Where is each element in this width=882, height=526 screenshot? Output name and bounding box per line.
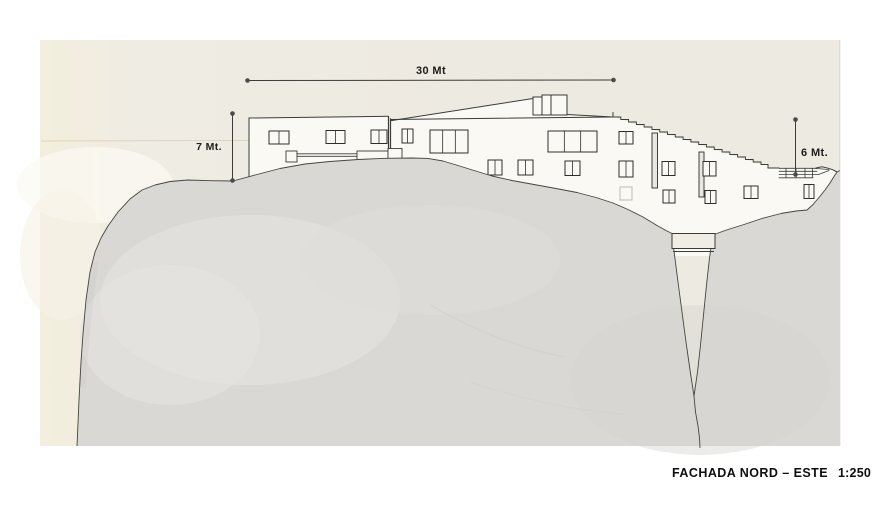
window [619, 132, 633, 145]
window [548, 131, 597, 152]
architectural-elevation-sheet: 30 Mt 7 Mt. 6 Mt. FACHADA NORD – ESTE1:2… [0, 0, 882, 526]
window [744, 186, 758, 199]
clerestory-box-small [533, 97, 542, 115]
caption-scale: 1:250 [838, 466, 871, 480]
dimension-left-height-label: 7 Mt. [196, 141, 222, 153]
window [620, 187, 632, 200]
window [518, 160, 533, 175]
window [619, 161, 633, 177]
window [703, 162, 716, 177]
window [269, 131, 289, 144]
window [663, 190, 675, 203]
window [705, 191, 716, 204]
window [488, 160, 502, 175]
window [402, 129, 413, 143]
dimension-right-height-label: 6 Mt. [801, 147, 828, 159]
drawing-caption: FACHADA NORD – ESTE1:250 [672, 466, 871, 480]
facade-slat [652, 133, 658, 188]
caption-title: FACHADA NORD – ESTE [672, 466, 828, 480]
window [326, 131, 345, 144]
window [565, 161, 580, 176]
clerestory-box-large [542, 95, 567, 115]
dimension-width-label: 30 Mt [416, 65, 446, 77]
crevice-bridge [672, 234, 715, 252]
elevation-drawing: 30 Mt 7 Mt. 6 Mt. [0, 0, 882, 526]
window [371, 130, 387, 144]
window [804, 185, 814, 199]
window [430, 130, 468, 153]
window [662, 162, 675, 176]
